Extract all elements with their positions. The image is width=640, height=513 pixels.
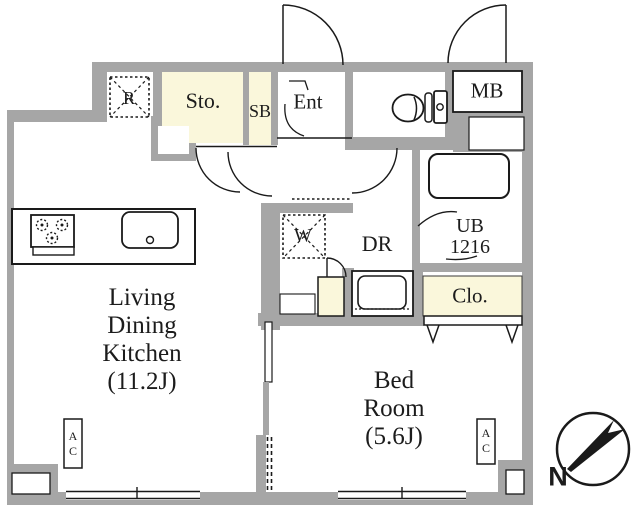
compass-icon [557,413,629,485]
storage-niche [158,126,189,154]
wall-closet-left [413,272,423,323]
dr-column [318,277,344,316]
bedroom-label-line1: Bed [363,367,424,395]
window-ldk [66,487,200,500]
corner-notch-bottomleft [12,473,50,494]
corner-notch-bottomright [506,470,524,494]
wall-left [7,110,14,505]
ldk-label: Living Dining Kitchen (11.2J) [102,284,181,396]
wall-unitbath-left [412,148,420,272]
washbasin-icon [352,271,413,316]
stove-icon [31,215,74,255]
bedroom-label-line2: Room [363,395,424,423]
bathtub-icon [429,154,509,198]
storage-label: Sto. [186,90,221,112]
wall-storage-left [153,72,162,120]
meter-box-label: MB [471,81,504,102]
front-door-right [448,5,506,63]
ldk-label-line1: Living [102,284,181,312]
wall-dr-left [261,203,280,330]
ldk-label-line4: (11.2J) [102,368,181,396]
dressing-room-label: DR [362,233,393,255]
dr-recess [280,294,315,314]
bedroom-label: Bed Room (5.6J) [363,367,424,451]
ac-living-label: AC [67,429,79,459]
ac-bedroom-label: AC [480,426,492,456]
refrigerator-label: R [123,89,135,107]
wall-partition-stub [256,435,266,492]
floorplan-drawing [0,0,640,513]
unit-bath-label-line1: UB [450,216,490,237]
wall-entrance-toilet [345,72,353,148]
unit-bath-label-line2: 1216 [450,237,490,258]
wall-sb-entrance [271,72,278,145]
ldk-label-line3: Kitchen [102,340,181,368]
wall-unitbath-bottom [412,263,533,272]
closet-label: Clo. [452,286,488,307]
bedroom-label-line3: (5.6J) [363,423,424,451]
wall-upperleft-v [92,62,107,122]
kitchen-counter-icon [12,209,195,264]
toilet-icon [393,91,448,123]
north-label: N [548,464,568,491]
closet-door [424,316,522,342]
washer-label: W [294,227,312,246]
shoe-box-label: SB [249,102,271,120]
window-bedroom [338,487,466,500]
toilet-door [352,148,397,193]
pipe-recess [469,117,524,150]
entrance-label: Ent [293,92,322,113]
floorplan: Living Dining Kitchen (11.2J) Bed Room (… [0,0,640,513]
unit-bath-label: UB 1216 [450,216,490,258]
storage-doors [196,147,277,197]
front-door-left [283,5,343,65]
wall-toilet-bottom [345,137,453,150]
ldk-label-line2: Dining [102,312,181,340]
sink-icon [122,212,178,248]
